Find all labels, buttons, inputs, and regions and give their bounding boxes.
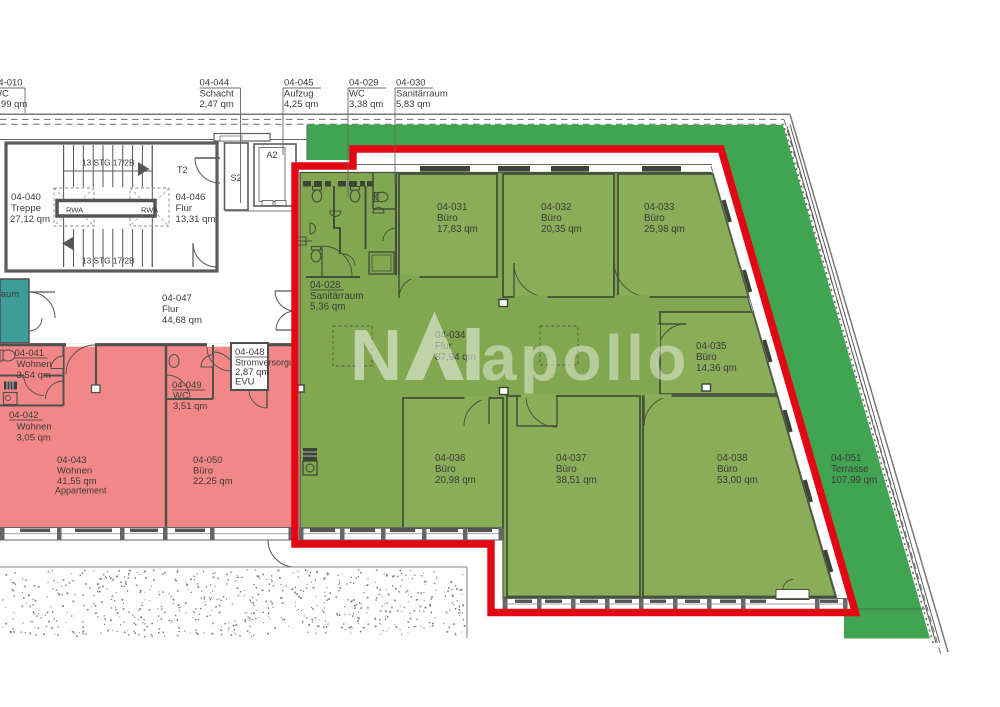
svg-text:WC: WC	[0, 89, 9, 100]
svg-text:20,35 qm: 20,35 qm	[541, 224, 582, 235]
svg-text:2,47 qm: 2,47 qm	[200, 99, 234, 110]
svg-text:04-046: 04-046	[176, 192, 206, 203]
svg-text:raum: raum	[0, 288, 19, 299]
svg-text:Flur: Flur	[176, 203, 193, 214]
svg-text:WC: WC	[349, 89, 365, 100]
svg-text:04-035: 04-035	[696, 341, 727, 352]
svg-text:Treppe: Treppe	[11, 203, 41, 214]
svg-text:Wohnen: Wohnen	[17, 359, 52, 370]
svg-text:Aufzug: Aufzug	[284, 89, 314, 100]
svg-text:04-038: 04-038	[717, 453, 748, 464]
svg-text:Wohnen: Wohnen	[57, 466, 92, 477]
svg-text:22,25 qm: 22,25 qm	[193, 476, 233, 487]
svg-text:04-043: 04-043	[57, 455, 87, 466]
svg-text:4,25 qm: 4,25 qm	[284, 99, 318, 110]
svg-text:Schacht: Schacht	[200, 89, 235, 100]
svg-text:N: N	[350, 316, 402, 396]
svg-text:3,99 qm: 3,99 qm	[0, 99, 27, 110]
svg-text:Büro: Büro	[541, 213, 562, 224]
svg-text:Büro: Büro	[717, 464, 738, 475]
svg-text:04-044: 04-044	[200, 78, 230, 89]
svg-text:Sanitärraum: Sanitärraum	[396, 89, 448, 100]
svg-text:04-040: 04-040	[11, 192, 41, 203]
svg-text:5,36 qm: 5,36 qm	[310, 302, 345, 313]
svg-text:27,12 qm: 27,12 qm	[10, 214, 50, 225]
svg-text:04-048: 04-048	[235, 347, 265, 358]
svg-text:RWA: RWA	[141, 206, 158, 215]
svg-text:17,83 qm: 17,83 qm	[437, 224, 478, 235]
svg-text:RWA: RWA	[66, 206, 83, 215]
svg-text:Terrasse: Terrasse	[831, 464, 869, 475]
svg-text:53,00 qm: 53,00 qm	[717, 475, 758, 486]
svg-text:Wohnen: Wohnen	[17, 422, 52, 433]
svg-text:Flur: Flur	[162, 304, 179, 315]
svg-text:04-042: 04-042	[9, 410, 39, 421]
svg-text:04-036: 04-036	[435, 453, 466, 464]
svg-text:04-047: 04-047	[162, 293, 192, 304]
svg-text:04-037: 04-037	[556, 453, 587, 464]
svg-text:107,99 qm: 107,99 qm	[831, 475, 877, 486]
svg-text:S2: S2	[231, 173, 242, 183]
svg-text:04-049: 04-049	[172, 380, 202, 391]
svg-text:A2: A2	[267, 150, 278, 160]
svg-text:04-051: 04-051	[831, 453, 862, 464]
svg-text:04-045: 04-045	[284, 78, 314, 89]
svg-text:14,36 qm: 14,36 qm	[696, 363, 737, 374]
svg-text:04-031: 04-031	[437, 202, 468, 213]
svg-text:20,98 qm: 20,98 qm	[435, 475, 476, 486]
svg-text:25,98 qm: 25,98 qm	[644, 224, 685, 235]
svg-text:Büro: Büro	[193, 466, 213, 477]
svg-text:EVU: EVU	[235, 377, 255, 388]
svg-text:13 STG 17/2B: 13 STG 17/2B	[82, 158, 135, 168]
svg-text:5,83 qm: 5,83 qm	[396, 99, 430, 110]
svg-text:Büro: Büro	[435, 464, 456, 475]
svg-text:Appartement: Appartement	[55, 486, 107, 496]
svg-text:04-010: 04-010	[0, 78, 23, 89]
svg-text:Büro: Büro	[644, 213, 665, 224]
svg-text:44,68 qm: 44,68 qm	[162, 315, 202, 326]
svg-text:T2: T2	[177, 165, 188, 175]
svg-text:3,51 qm: 3,51 qm	[173, 401, 207, 412]
svg-text:Büro: Büro	[556, 464, 577, 475]
svg-text:04-030: 04-030	[396, 78, 426, 89]
svg-text:13 STG 17/2B: 13 STG 17/2B	[82, 256, 135, 266]
svg-text:WC: WC	[173, 391, 189, 402]
svg-text:Büro: Büro	[696, 352, 717, 363]
svg-text:3,05 qm: 3,05 qm	[17, 433, 51, 444]
svg-text:04-033: 04-033	[644, 202, 675, 213]
svg-text:04-029: 04-029	[349, 78, 379, 89]
svg-text:04-050: 04-050	[193, 455, 223, 466]
svg-text:38,51 qm: 38,51 qm	[556, 475, 597, 486]
svg-text:13,31 qm: 13,31 qm	[176, 214, 216, 225]
svg-text:04-032: 04-032	[541, 202, 572, 213]
svg-text:3,38 qm: 3,38 qm	[349, 99, 383, 110]
svg-text:3,54 qm: 3,54 qm	[17, 370, 51, 381]
svg-text:04-041: 04-041	[15, 348, 45, 359]
svg-text:Büro: Büro	[437, 213, 458, 224]
svg-text:04-028: 04-028	[310, 280, 341, 291]
svg-text:Sanitärraum: Sanitärraum	[310, 291, 363, 302]
svg-text:apollo: apollo	[481, 322, 690, 394]
